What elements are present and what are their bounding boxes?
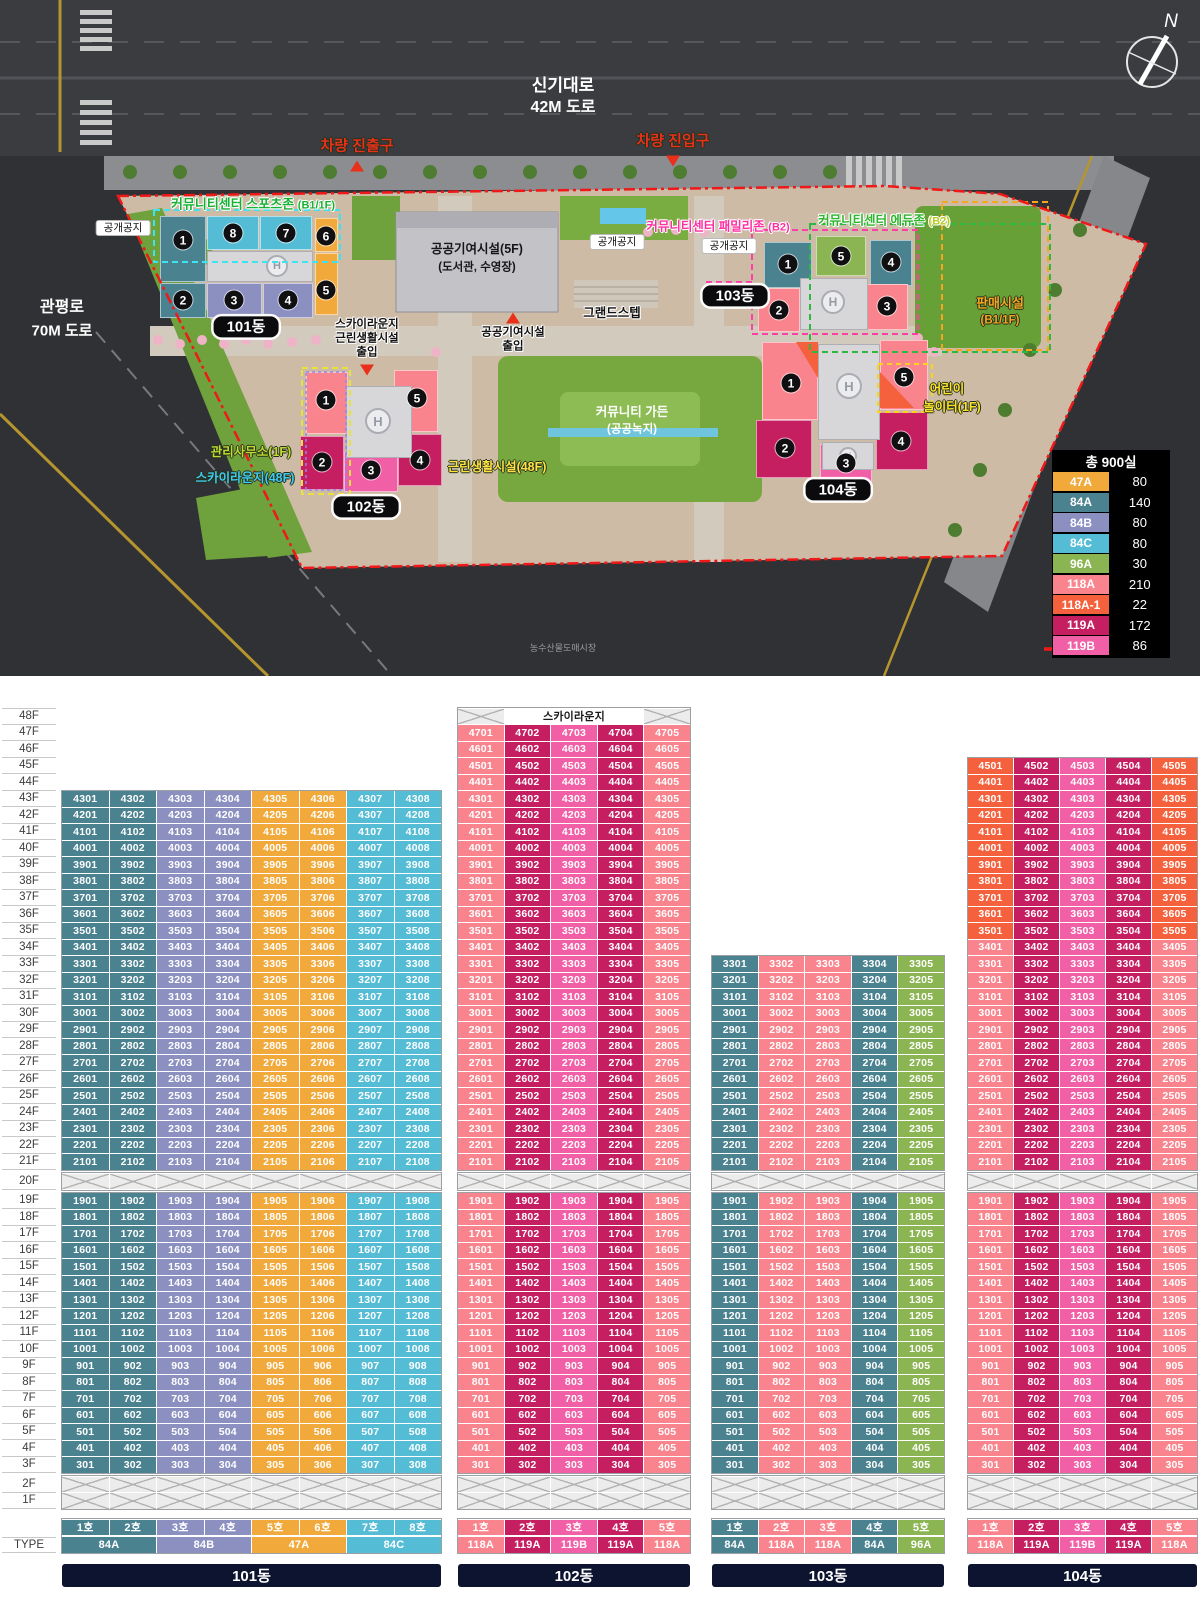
legend-count-cell: 22 [1111,595,1170,614]
unit-cell: 1301 [458,1292,504,1308]
hatched-cell [300,1477,347,1493]
unit-cell: 3601 [968,907,1013,923]
unit-cell: 4404 [1106,775,1151,791]
unit-cell: 4307 [347,808,394,824]
unit-cell: 3405 [644,940,690,956]
unit-cell: 2704 [205,1055,252,1071]
sky-entry-label-1: 스카이라운지 [335,318,398,331]
hatched-cell [805,1477,851,1493]
unit-cell: 808 [395,1375,442,1391]
unit-cell: 3405 [252,940,299,956]
unit-cell: 1304 [852,1292,898,1308]
unit-cell: 2405 [252,1105,299,1121]
legend-count-cell: 210 [1111,575,1170,594]
unit-cell: 4303 [551,791,597,807]
unit-cell: 4103 [551,824,597,840]
unit-cell: 1001 [968,1342,1013,1358]
unit-cell: 507 [347,1424,394,1440]
unit-cell: 1605 [1152,1243,1197,1259]
unit-cell: 1202 [110,1309,157,1325]
ho-cell: 3호 [1060,1520,1105,1536]
unit-cell: 1201 [62,1309,109,1325]
unit-cell: 2708 [395,1055,442,1071]
unit-cell: 1604 [205,1243,252,1259]
unit-cell: 1004 [1106,1342,1151,1358]
unit-cell: 2703 [805,1055,851,1071]
hatched-cell [968,1174,1013,1190]
garden-label: 커뮤니티 가든 [596,405,668,419]
ho-cell: 3호 [805,1520,851,1536]
unit-cell: 1603 [805,1243,851,1259]
unit-cell: 1405 [644,1276,690,1292]
floor-row: 18011802180318041805 [968,1210,1197,1226]
hatched-cell [712,1477,758,1493]
floor-row: 801802803804805 [968,1375,1197,1391]
unit-cell: 2603 [157,1072,204,1088]
unit-cell: 2803 [805,1039,851,1055]
unit-cell: 4402 [1014,775,1059,791]
unit-cell: 2705 [252,1055,299,1071]
building-name-bar: 103동 [712,1564,944,1587]
unit-cell: 3804 [598,874,644,890]
unit-cell: 3402 [505,940,551,956]
unit-cell: 3101 [712,989,758,1005]
floor-row: 701702703704705 [968,1391,1197,1407]
unit-cell: 3504 [598,923,644,939]
floor-label: 36F [2,906,56,923]
unit-cell: 1803 [551,1210,597,1226]
unit-cell: 4505 [644,758,690,774]
unit-cell: 2504 [852,1088,898,1104]
floor-row: 25012502250325042505 [712,1088,944,1104]
unit-cell: 503 [551,1424,597,1440]
floor-row: 32013202320332043205320632073208 [62,973,441,989]
unit-cell: 303 [1060,1457,1105,1473]
unit-cell: 2904 [598,1022,644,1038]
legend-type-cell: 84B [1053,513,1109,532]
unit-cell: 1802 [1014,1210,1059,1226]
floor-label: 29F [2,1022,56,1039]
unit-cell: 403 [805,1441,851,1457]
unit-cell: 2903 [157,1022,204,1038]
unit-cell: 304 [205,1457,252,1473]
unit-cell: 4104 [598,824,644,840]
unit-cell: 2102 [110,1154,157,1170]
hatched-cell [1014,1477,1059,1493]
floor-row: 33013302330333043305 [458,956,690,972]
unit-cell: 2301 [968,1121,1013,1137]
hatched-cell [62,1477,109,1493]
sky-lounge-label: 스카이라운지(48F) [196,471,295,485]
unit-cell: 606 [300,1408,347,1424]
unit-cell: 1605 [644,1243,690,1259]
hatched-cell [551,1477,597,1493]
unit-cell: 3008 [395,1006,442,1022]
unit-cell: 3103 [805,989,851,1005]
unit-cell: 1805 [1152,1210,1197,1226]
floor-label: 14F [2,1275,56,1292]
unit-cell: 1503 [805,1259,851,1275]
legend-row: 84B80 [1053,513,1169,532]
unit-cell: 4703 [551,725,597,741]
unit-cell: 2706 [300,1055,347,1071]
unit-cell: 3003 [805,1006,851,1022]
unit-cell: 4605 [644,742,690,758]
floor-label: 4F [2,1440,56,1457]
floor-row: 31013102310331043105 [968,989,1197,1005]
unit-cell: 4302 [1014,791,1059,807]
unit-cell: 2104 [205,1154,252,1170]
unit-cell: 1303 [805,1292,851,1308]
unit-cell: 1401 [458,1276,504,1292]
unit-cell: 1503 [1060,1259,1105,1275]
unit-cell: 2502 [505,1088,551,1104]
unit-cell: 1205 [898,1309,944,1325]
unit-cell: 2905 [644,1022,690,1038]
unit-cell: 2905 [898,1022,944,1038]
unit-cell: 2404 [598,1105,644,1121]
unit-cell: 3806 [300,874,347,890]
unit-cell: 1301 [712,1292,758,1308]
unit-cell: 1103 [1060,1325,1105,1341]
unit-cell: 2402 [1014,1105,1059,1121]
floor-row: 601602603604605 [712,1408,944,1424]
floor-row: 401402403404405 [712,1441,944,1457]
unit-cell: 3801 [62,874,109,890]
unit-cell: 1101 [712,1325,758,1341]
unit-cell: 2903 [805,1022,851,1038]
unit-cell: 1905 [644,1193,690,1209]
floor-row: 801802803804805 [458,1375,690,1391]
unit-cell: 1504 [598,1259,644,1275]
unit-cell: 2401 [62,1105,109,1121]
unit-cell: 4505 [1152,758,1197,774]
unit-cell: 2604 [852,1072,898,1088]
unit-cell: 806 [300,1375,347,1391]
floor-row: 14011402140314041405 [712,1276,944,1292]
building-name-bar: 101동 [62,1564,441,1587]
unit-cell: 603 [805,1408,851,1424]
zone-sports-label: 커뮤니티센터 스포츠존 (B1/1F) [171,198,335,213]
unit-cell: 3705 [644,890,690,906]
unit-cell: 1304 [598,1292,644,1308]
legend-row: 96A30 [1053,554,1169,573]
type-cell: 84A [62,1537,156,1553]
unit-cell: 1904 [1106,1193,1151,1209]
unit-cell: 304 [1106,1457,1151,1473]
ho-cell: 5호 [252,1520,299,1536]
unit-cell: 2603 [805,1072,851,1088]
floor-row: 41014102410341044105410641074108 [62,824,441,840]
unit-cell: 4206 [300,808,347,824]
unit-cell: 701 [712,1391,758,1407]
floor-label: 35F [2,923,56,940]
ho-cell: 2호 [759,1520,805,1536]
unit-cell: 1502 [110,1259,157,1275]
unit-cell: 404 [852,1441,898,1457]
floor-row: 501502503504505 [968,1424,1197,1440]
unit-cell: 3004 [598,1006,644,1022]
floor-row: 24012402240324042405 [712,1105,944,1121]
unit-cell: 1403 [157,1276,204,1292]
unit-cell: 2304 [205,1121,252,1137]
unit-cell: 3203 [551,973,597,989]
unit-cell: 4308 [395,791,442,807]
gate-exit-arrow-icon [350,161,364,172]
hatched-cell [551,1174,597,1190]
unit-cell: 2404 [852,1105,898,1121]
unit-cell: 301 [968,1457,1013,1473]
unit-cell: 2402 [505,1105,551,1121]
unit-cell: 3302 [759,956,805,972]
unit-cell: 3703 [157,890,204,906]
hatched-cell [205,1477,252,1493]
unit-cell: 2303 [805,1121,851,1137]
hatched-floor-row [62,1174,441,1190]
unit-cell: 1302 [1014,1292,1059,1308]
unit-cell: 1005 [252,1342,299,1358]
market-label: 농수산물도매시장 [530,643,596,653]
unit-cell: 3004 [205,1006,252,1022]
unit-cell: 1105 [1152,1325,1197,1341]
sky-entry-label-2: 근린생활시설 [335,332,398,345]
unit-cell: 803 [1060,1375,1105,1391]
floor-row: 23012302230323042305 [712,1121,944,1137]
unit-cell: 2302 [1014,1121,1059,1137]
legend-type-cell: 118A-1 [1053,595,1109,614]
unit-cell: 2305 [252,1121,299,1137]
unit-cell: 2107 [347,1154,394,1170]
unit-cell: 2701 [968,1055,1013,1071]
floor-row: 29012902290329042905 [458,1022,690,1038]
unit-cell: 3003 [1060,1006,1105,1022]
unit-cell: 2403 [157,1105,204,1121]
unit-cell: 3402 [1014,940,1059,956]
unit-cell: 4003 [551,841,597,857]
unit-cell: 1601 [62,1243,109,1259]
unit-cell: 2208 [395,1138,442,1154]
sales-facility-label: 판매시설 [976,297,1024,312]
unit-cell: 3403 [551,940,597,956]
unit-cell: 1901 [968,1193,1013,1209]
unit-cell: 1105 [898,1325,944,1341]
unit-cell: 3603 [551,907,597,923]
hatched-cell [205,1174,252,1190]
unit-cell: 2502 [1014,1088,1059,1104]
floor-row: 36013602360336043605 [458,907,690,923]
unit-cell: 4502 [1014,758,1059,774]
unit-cell: 501 [968,1424,1013,1440]
unit-cell: 2802 [759,1039,805,1055]
unit-cell: 3303 [805,956,851,972]
unit-cell: 1604 [598,1243,644,1259]
unit-cell: 3406 [300,940,347,956]
unit-cell: 1903 [1060,1193,1105,1209]
unit-cell: 1805 [898,1210,944,1226]
unit-cell: 2205 [644,1138,690,1154]
unit-cell: 2202 [759,1138,805,1154]
unit-cell: 1705 [898,1226,944,1242]
floor-row: 21012102210321042105 [968,1154,1197,1170]
unit-cell: 4101 [968,824,1013,840]
floor-row: 34013402340334043405340634073408 [62,940,441,956]
unit-cell: 3202 [110,973,157,989]
floor-row: 27012702270327042705 [968,1055,1197,1071]
ho-cell: 3호 [157,1520,204,1536]
unit-cell: 2103 [1060,1154,1105,1170]
unit-cell: 2801 [62,1039,109,1055]
hatched-cell [805,1493,851,1509]
unit-cell: 3203 [805,973,851,989]
floor-row: 37013702370337043705370637073708 [62,890,441,906]
unit-cell: 3005 [644,1006,690,1022]
unit-cell: 1501 [62,1259,109,1275]
hatched-cell [644,1493,690,1509]
unit-cell: 4501 [458,758,504,774]
unit-cell: 2502 [759,1088,805,1104]
legend-count-cell: 80 [1111,472,1170,491]
unit-cell: 1504 [852,1259,898,1275]
unit-cell: 1301 [968,1292,1013,1308]
unit-cell: 505 [1152,1424,1197,1440]
sales-facility-sub: (B1/1F) [981,314,1020,327]
unit-cell: 3703 [1060,890,1105,906]
unit-cell: 903 [805,1358,851,1374]
unit-cell: 305 [252,1457,299,1473]
unit-cell: 4004 [205,841,252,857]
unit-cell: 1502 [759,1259,805,1275]
unit-cell: 4604 [598,742,644,758]
unit-cell: 4501 [968,758,1013,774]
ho-row: 1호2호3호4호5호 [712,1520,944,1536]
unit-cell: 1601 [968,1243,1013,1259]
unit-cell: 4307 [347,791,394,807]
type-row: 84A118A118A84A96A [712,1537,944,1553]
unit-cell: 1101 [458,1325,504,1341]
unit-cell: 602 [505,1408,551,1424]
unit-cell: 904 [852,1358,898,1374]
floor-row: 29012902290329042905290629072908 [62,1022,441,1038]
sky-lounge-header-row: 스카이라운지 [458,709,690,725]
floor-label: 37F [2,890,56,907]
unit-cell: 305 [1152,1457,1197,1473]
unit-cell: 503 [805,1424,851,1440]
floor-row: 30013002300330043005 [712,1006,944,1022]
unit-cell: 2707 [347,1055,394,1071]
unit-cell: 3201 [712,973,758,989]
unit-cell: 1103 [551,1325,597,1341]
building-name-bar: 102동 [458,1564,690,1587]
unit-cell: 404 [1106,1441,1151,1457]
zone-edu-label: 커뮤니티센터 에듀존 (B2) [818,214,950,229]
floor-row: 40014002400340044005400640074008 [62,841,441,857]
unit-cell: 3903 [157,857,204,873]
unit-cell: 506 [300,1424,347,1440]
unit-cell: 1703 [805,1226,851,1242]
legend-row: 47A80 [1053,472,1169,491]
unit-cell: 905 [644,1358,690,1374]
unit-cell: 3804 [1106,874,1151,890]
unit-cell: 2501 [968,1088,1013,1104]
unit-cell: 702 [110,1391,157,1407]
unit-cell: 1405 [898,1276,944,1292]
unit-cell: 4103 [1060,824,1105,840]
hatched-cell [395,1174,442,1190]
hatched-cell [347,1477,394,1493]
floor-label: 28F [2,1038,56,1055]
unit-cell: 1804 [852,1210,898,1226]
floor-row: 15011502150315041505150615071508 [62,1259,441,1275]
unit-cell: 1008 [395,1342,442,1358]
floor-label: 31F [2,989,56,1006]
floor-row: 14011402140314041405 [458,1276,690,1292]
unit-cell: 3608 [395,907,442,923]
floor-row: 39013902390339043905390639073908 [62,857,441,873]
unit-cell: 3902 [1014,857,1059,873]
unit-cell: 1702 [110,1226,157,1242]
unit-cell: 801 [968,1375,1013,1391]
unit-cell: 1605 [252,1243,299,1259]
unit-cell: 2405 [1152,1105,1197,1121]
floor-row: 25012502250325042505 [968,1088,1197,1104]
floor-row: 28012802280328042805 [968,1039,1197,1055]
type-cell: 118A [458,1537,504,1553]
unit-cell: 3003 [551,1006,597,1022]
unit-cell: 705 [898,1391,944,1407]
ho-cell: 1호 [458,1520,504,1536]
badge-101: 101동 [214,316,279,337]
hatched-cell [395,1493,442,1509]
unit-cell: 3903 [551,857,597,873]
unit-cell: 903 [551,1358,597,1374]
unit-cell: 2102 [759,1154,805,1170]
unit-cell: 2803 [551,1039,597,1055]
unit-cell: 3004 [852,1006,898,1022]
unit-cell: 303 [551,1457,597,1473]
floor-row: 801802803804805806807808 [62,1375,441,1391]
legend-type-cell: 118A [1053,575,1109,594]
unit-cell: 2403 [1060,1105,1105,1121]
unit-cell: 4205 [644,808,690,824]
unit-cell: 2704 [852,1055,898,1071]
unit-cell: 708 [395,1391,442,1407]
unit-cell: 3402 [110,940,157,956]
hatched-cell [1060,1493,1105,1509]
unit-cell: 3801 [458,874,504,890]
unit-cell: 306 [300,1457,347,1473]
unit-cell: 1308 [395,1292,442,1308]
unit-cell: 2201 [968,1138,1013,1154]
unit-cell: 2801 [458,1039,504,1055]
hatched-floor-row [712,1174,944,1190]
unit-cell: 3004 [1106,1006,1151,1022]
unit-cell: 3007 [347,1006,394,1022]
floor-label: 27F [2,1055,56,1072]
unit-cell: 3001 [968,1006,1013,1022]
unit-cell: 608 [395,1408,442,1424]
unit-cell: 1403 [805,1276,851,1292]
unit-cell: 1307 [347,1292,394,1308]
unit-cell: 3901 [458,857,504,873]
site-plan-labels: 신기대로 42M 도로 관평로 70M 도로 N 차량 진출구 차량 진입구 커… [0,0,1200,676]
floor-row: 11011102110311041105 [458,1325,690,1341]
unit-cell: 4701 [458,725,504,741]
hatched-cell [712,1493,758,1509]
unit-cell: 4504 [1106,758,1151,774]
unit-cell: 3702 [110,890,157,906]
unit-cell: 2302 [759,1121,805,1137]
unit-cell: 2906 [300,1022,347,1038]
